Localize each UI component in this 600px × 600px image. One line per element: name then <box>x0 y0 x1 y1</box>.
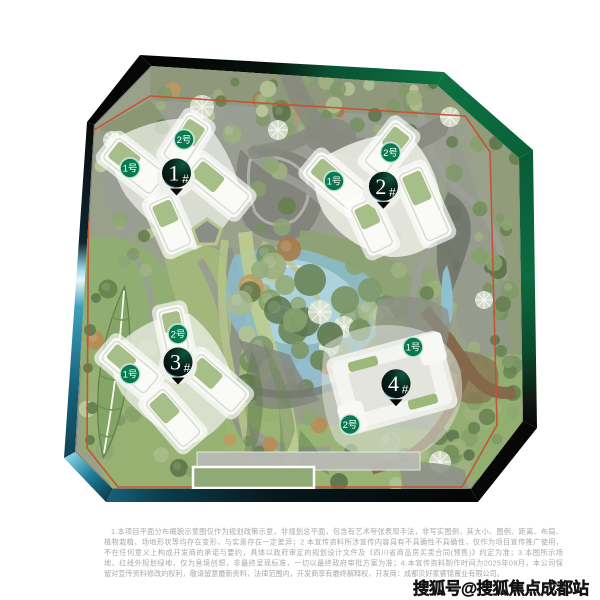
svg-text:3: 3 <box>170 350 181 375</box>
svg-text:1.本项目平面分布概貌示意图仅作为规划政策示意，非规划总平面: 1.本项目平面分布概貌示意图仅作为规划政策示意，非规划总平面，包含有艺术夸张表现… <box>111 527 563 536</box>
svg-text:1号: 1号 <box>123 370 138 381</box>
svg-text:2: 2 <box>375 174 386 199</box>
svg-text:1号: 1号 <box>406 343 421 354</box>
svg-text:#: # <box>184 361 191 375</box>
svg-text:4: 4 <box>388 371 399 396</box>
svg-text:植物栽植、场地形状等均存在变形，与实景存在一定差异；2.本宣: 植物栽植、场地形状等均存在变形，与实景存在一定差异；2.本宣传资料所涉宣传内容具… <box>104 538 563 547</box>
svg-text:搜狐号@搜狐焦点成都站: 搜狐号@搜狐焦点成都站 <box>413 578 590 598</box>
svg-text:不在任何意义上构成开发商的承诺与要约，具体以政府审定的规划设: 不在任何意义上构成开发商的承诺与要约，具体以政府审定的规划设计文件及《四川省商品… <box>104 548 563 557</box>
svg-text:留对宣传资料修改的权利，敬请留意最新资料，法律范围内，开发商: 留对宣传资料修改的权利，敬请留意最新资料，法律范围内，开发商享有最终解释权，开发… <box>104 569 504 578</box>
svg-text:2号: 2号 <box>343 420 358 431</box>
svg-text:1号: 1号 <box>123 164 138 175</box>
svg-text:1: 1 <box>169 161 180 186</box>
svg-text:#: # <box>389 185 396 199</box>
svg-text:地、红线外规划绿地，仅为意境创想，非最终呈现标准，一切以最终: 地、红线外规划绿地，仅为意境创想，非最终呈现标准，一切以最终政府审批方案为准；4… <box>104 559 564 568</box>
svg-text:2号: 2号 <box>177 135 192 146</box>
svg-text:#: # <box>402 383 409 397</box>
svg-text:1号: 1号 <box>327 177 342 188</box>
svg-text:2号: 2号 <box>383 148 398 159</box>
svg-text:2号: 2号 <box>171 330 186 341</box>
svg-text:#: # <box>182 172 189 186</box>
